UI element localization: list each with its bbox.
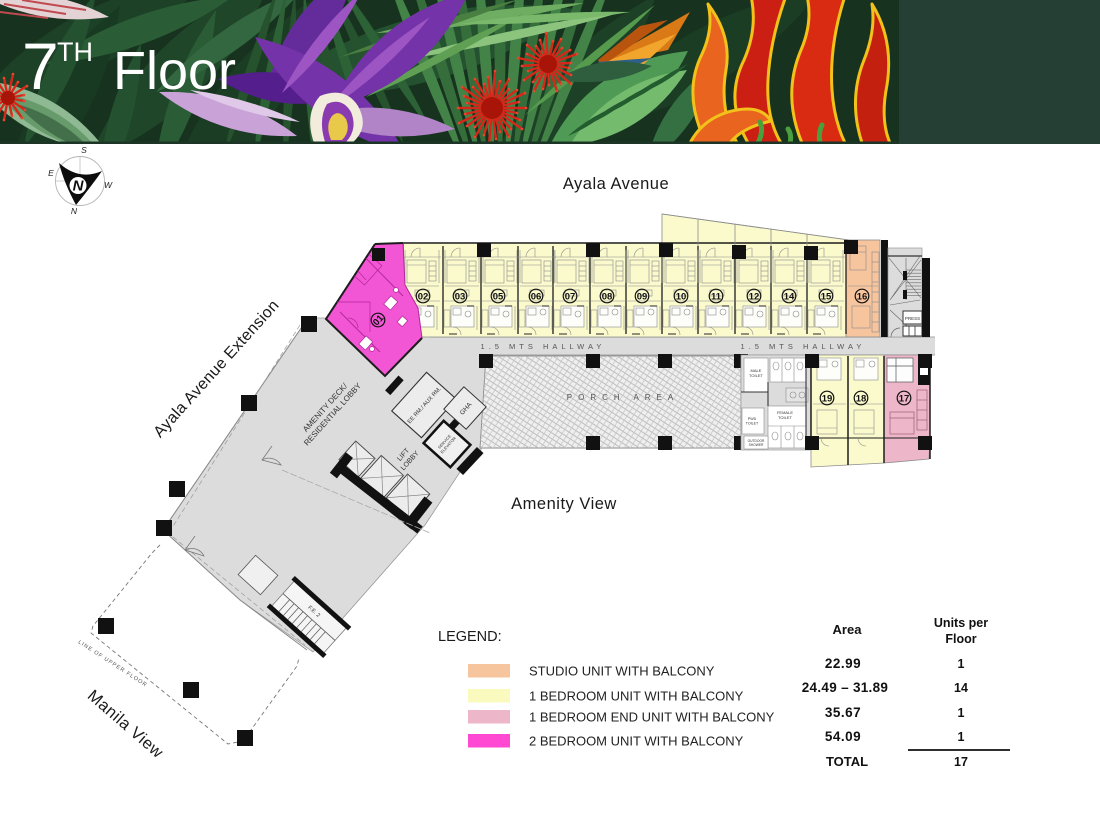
svg-text:Amenity View: Amenity View	[511, 495, 617, 513]
svg-text:TOILET: TOILET	[746, 422, 759, 426]
svg-text:TH: TH	[57, 37, 93, 67]
svg-text:1: 1	[958, 730, 965, 744]
svg-text:22.99: 22.99	[825, 656, 861, 671]
svg-text:16: 16	[857, 292, 868, 303]
svg-text:Area: Area	[833, 622, 863, 637]
svg-text:06: 06	[531, 292, 542, 303]
svg-text:TOILET: TOILET	[778, 415, 792, 420]
svg-text:07: 07	[565, 292, 576, 303]
svg-text:SHOWER: SHOWER	[749, 443, 764, 447]
svg-text:1.5 MTS HALLWAY: 1.5 MTS HALLWAY	[481, 342, 606, 351]
svg-text:17: 17	[954, 755, 968, 769]
svg-text:12: 12	[749, 292, 760, 303]
svg-text:03: 03	[455, 292, 466, 303]
svg-text:1 BEDROOM END UNIT WITH BALCON: 1 BEDROOM END UNIT WITH BALCONY	[529, 710, 775, 725]
svg-text:E: E	[48, 168, 54, 178]
svg-text:09: 09	[637, 292, 648, 303]
svg-text:14: 14	[954, 681, 968, 695]
svg-text:N: N	[71, 206, 78, 216]
svg-text:1.5 MTS HALLWAY: 1.5 MTS HALLWAY	[741, 342, 866, 351]
svg-text:1 BEDROOM UNIT WITH BALCONY: 1 BEDROOM UNIT WITH BALCONY	[529, 689, 744, 704]
svg-text:02: 02	[418, 292, 429, 303]
svg-text:Floor: Floor	[945, 632, 976, 646]
svg-text:14: 14	[784, 292, 795, 303]
svg-text:15: 15	[821, 292, 832, 303]
svg-text:LEGEND:: LEGEND:	[438, 629, 502, 645]
svg-text:Floor: Floor	[113, 41, 236, 101]
svg-text:STUDIO UNIT WITH BALCONY: STUDIO UNIT WITH BALCONY	[529, 664, 715, 679]
svg-text:08: 08	[602, 292, 613, 303]
svg-text:17: 17	[899, 394, 910, 405]
svg-text:54.09: 54.09	[825, 729, 861, 744]
svg-text:TOILET: TOILET	[749, 373, 763, 378]
svg-text:1: 1	[958, 706, 965, 720]
svg-text:10: 10	[676, 292, 687, 303]
svg-text:11: 11	[711, 292, 722, 303]
svg-text:35.67: 35.67	[825, 705, 861, 720]
svg-text:18: 18	[856, 394, 867, 405]
svg-text:1: 1	[958, 657, 965, 671]
svg-text:PRESS: PRESS	[905, 316, 920, 321]
svg-text:7: 7	[22, 29, 59, 103]
svg-text:24.49 – 31.89: 24.49 – 31.89	[802, 680, 888, 695]
svg-text:2 BEDROOM UNIT WITH BALCONY: 2 BEDROOM UNIT WITH BALCONY	[529, 734, 744, 749]
svg-text:19: 19	[822, 394, 833, 405]
svg-text:05: 05	[493, 292, 504, 303]
svg-text:PORCH AREA: PORCH AREA	[567, 393, 679, 402]
svg-text:TOTAL: TOTAL	[826, 754, 868, 769]
svg-text:W: W	[104, 180, 113, 190]
svg-text:N: N	[73, 178, 85, 195]
svg-text:Ayala Avenue: Ayala Avenue	[563, 175, 669, 193]
svg-text:S: S	[81, 145, 87, 155]
svg-text:PWD: PWD	[748, 417, 757, 421]
svg-text:Units per: Units per	[934, 616, 988, 630]
